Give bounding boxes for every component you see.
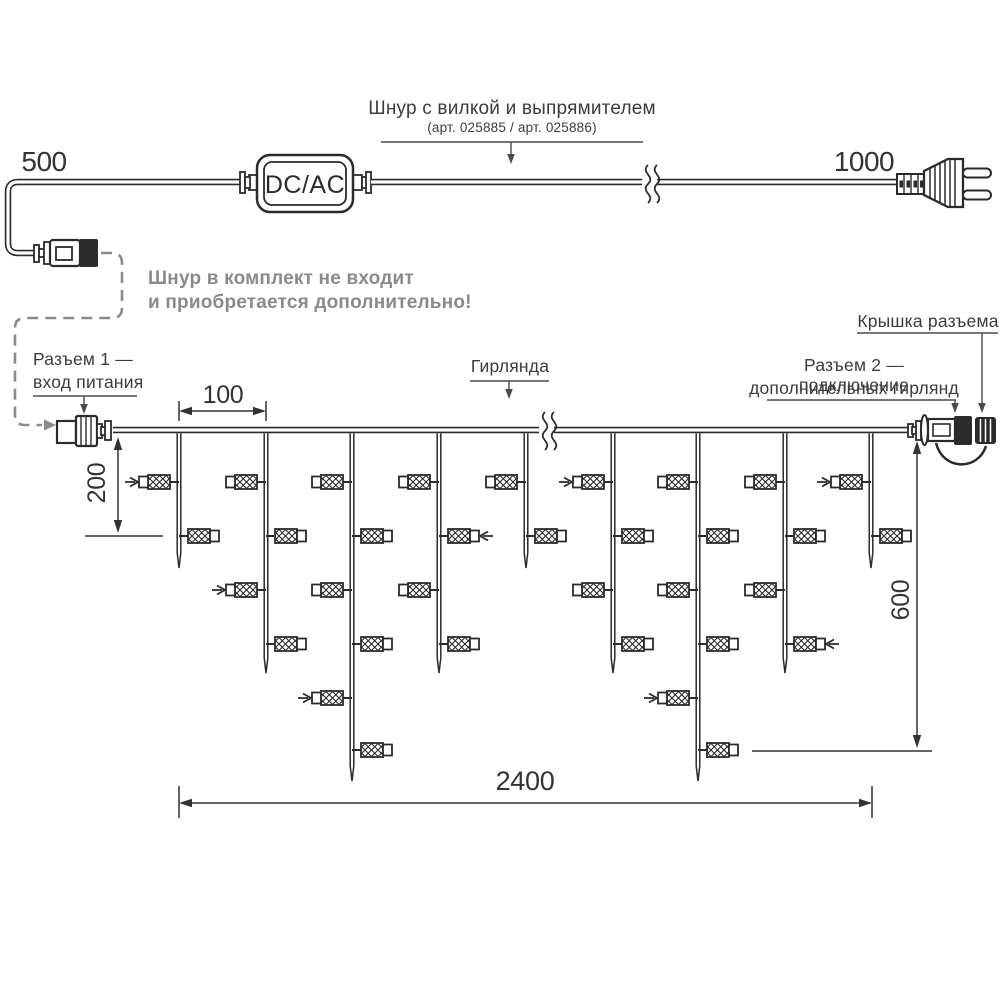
direction-arrow-icon: [212, 586, 225, 595]
lamp-icon: [226, 583, 266, 597]
direction-arrow-icon: [817, 478, 830, 487]
cord-callout-leader: [381, 142, 643, 164]
garland-label: Гирлянда: [440, 356, 580, 376]
lamp-icon: [312, 475, 352, 489]
strand: [869, 433, 873, 568]
lamp-icon: [745, 475, 785, 489]
cap-tether: [936, 443, 986, 464]
dashed-leader: [15, 253, 122, 431]
lamp-icon: [486, 475, 526, 489]
dim-500-label: 500: [10, 146, 78, 178]
lamp-icon: [698, 637, 738, 651]
connector1-leader: [33, 396, 137, 414]
strand: [783, 433, 787, 673]
connector2-leader: [767, 400, 959, 413]
dcac-label: DC/AC: [257, 171, 353, 200]
lamp-icon: [785, 529, 825, 543]
connector1-label-line1: Разъем 1 —: [33, 349, 133, 369]
strand: [696, 433, 700, 781]
dim-200-label: 200: [85, 460, 109, 506]
lamp-icon: [399, 475, 439, 489]
connector2-icon: [908, 415, 996, 464]
lamp-icon: [613, 529, 653, 543]
gray-arrowhead-icon: [44, 420, 56, 431]
connector-cap-icon: [975, 417, 996, 444]
lamp-icon: [312, 691, 352, 705]
note-line1: Шнур в комплект не входит: [148, 268, 414, 290]
lamp-icon: [399, 583, 439, 597]
dim-1000-label: 1000: [824, 146, 904, 178]
lamp-icon: [785, 637, 825, 651]
strand: [264, 433, 268, 673]
lamp-icon: [312, 583, 352, 597]
connector1-label-line2: вход питания: [33, 372, 143, 392]
direction-arrow-icon: [644, 694, 657, 703]
lamp-icon: [658, 475, 698, 489]
lamp-icon: [266, 529, 306, 543]
cord-callout-title: Шнур с вилкой и выпрямителем: [362, 98, 662, 120]
direction-arrow-icon: [480, 532, 493, 541]
lamp-icon: [871, 529, 911, 543]
lamp-icon: [352, 637, 392, 651]
lamp-icon: [179, 529, 219, 543]
lamp-icon: [526, 529, 566, 543]
lamp-icon: [658, 691, 698, 705]
lamp-icon: [439, 637, 479, 651]
lamp-icon: [613, 637, 653, 651]
lamp-icon: [352, 743, 392, 757]
garland-break-icon: [539, 412, 556, 450]
direction-arrow-icon: [298, 694, 311, 703]
strand: [350, 433, 354, 781]
connector1-icon: [57, 416, 111, 446]
dim-600-label: 600: [889, 577, 913, 623]
lamp-icon: [831, 475, 871, 489]
direction-arrow-icon: [125, 478, 138, 487]
strand: [524, 433, 528, 568]
lamp-icon: [745, 583, 785, 597]
lamp-icon: [698, 529, 738, 543]
strand: [437, 433, 441, 673]
lamp-icon: [658, 583, 698, 597]
strand: [611, 433, 615, 673]
direction-arrow-icon: [559, 478, 572, 487]
cap-label: Крышка разъема: [856, 311, 1000, 331]
lamp-icon: [352, 529, 392, 543]
direction-arrow-icon: [826, 640, 839, 649]
dim-2400-label: 2400: [477, 766, 573, 797]
diagram-page: 500 Шнур с вилкой и выпрямителем (арт. 0…: [0, 0, 1000, 1000]
lamp-icon: [139, 475, 179, 489]
note-line2: и приобретается дополнительно!: [148, 292, 472, 314]
dim-100-label: 100: [197, 381, 249, 410]
connector2-label-line2: дополнительных гирлянд: [748, 378, 960, 398]
lamp-icon: [698, 743, 738, 757]
lamp-icon: [573, 475, 613, 489]
input-cord-connector-icon: [34, 239, 98, 267]
garland-leader: [470, 381, 549, 399]
lamp-icon: [573, 583, 613, 597]
lamp-icon: [226, 475, 266, 489]
cord-callout-subtitle: (арт. 025885 / арт. 025886): [362, 120, 662, 136]
cord-break-icon: [642, 165, 659, 203]
power-plug-icon: [897, 155, 991, 210]
strand: [177, 433, 181, 568]
lamp-icon: [439, 529, 479, 543]
lamp-icon: [266, 637, 306, 651]
